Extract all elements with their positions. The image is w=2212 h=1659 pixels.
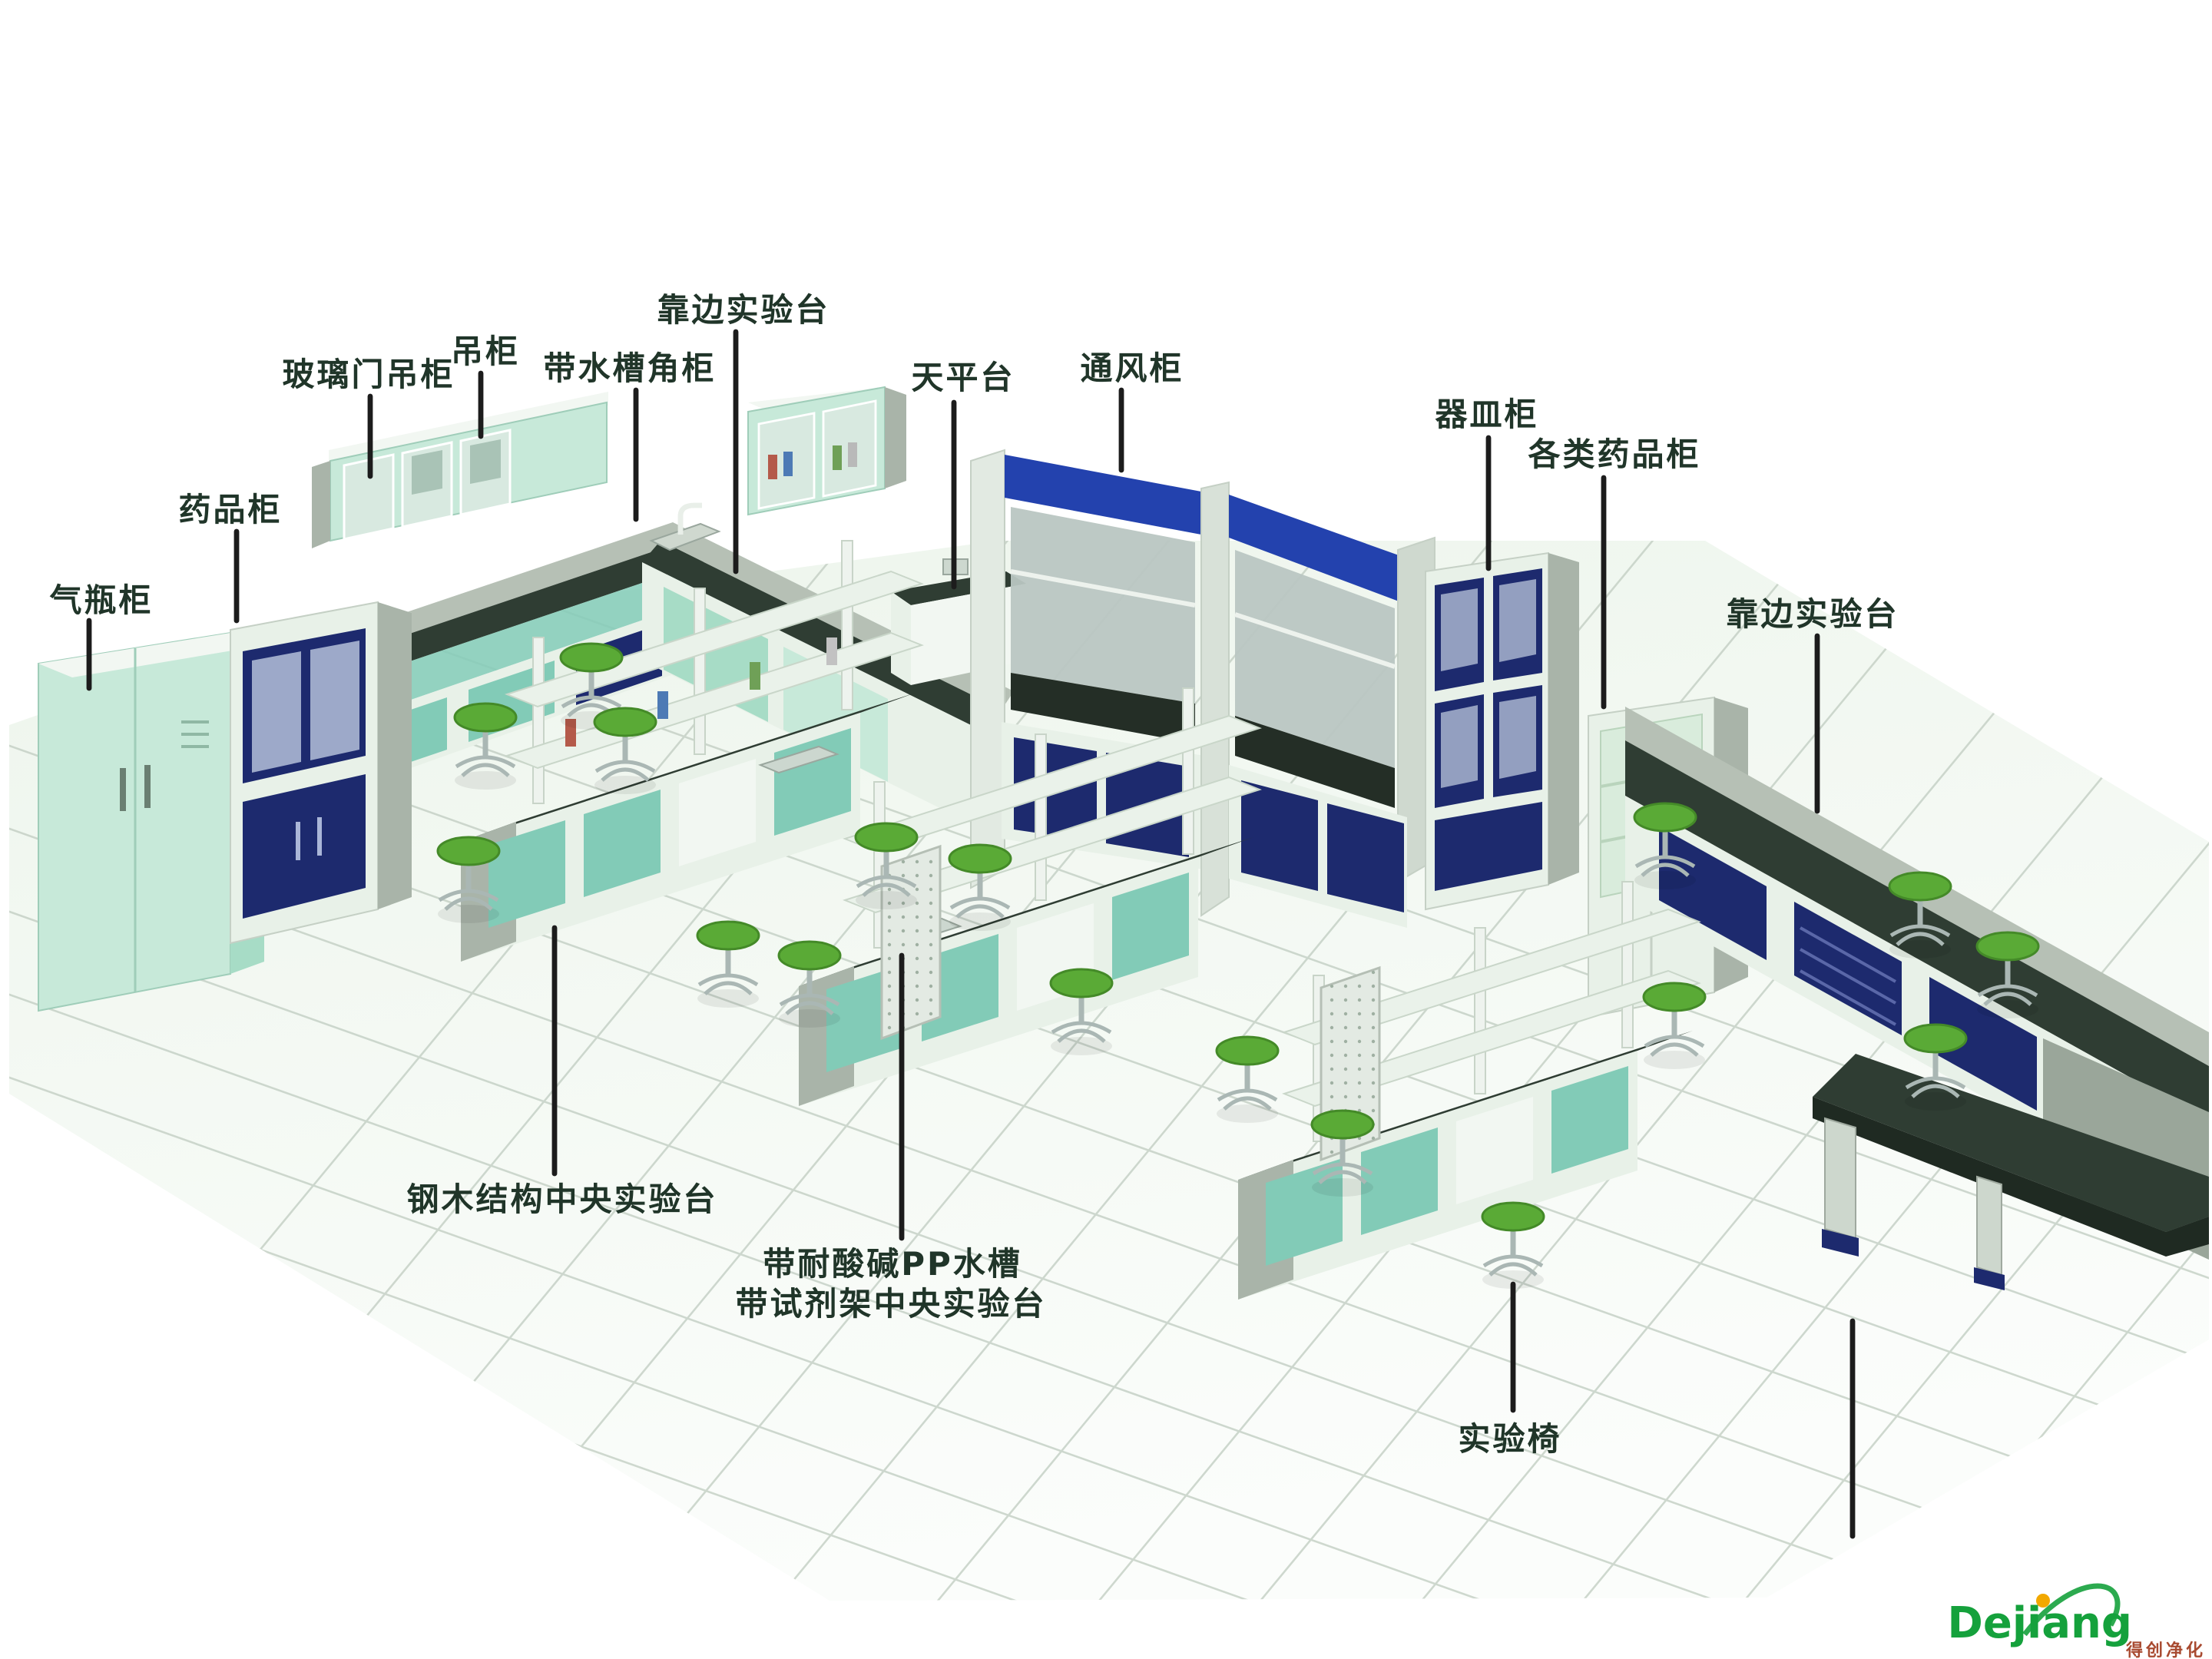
label-central-bench-sink-line2: 带试剂架中央实验台 (735, 1285, 1046, 1323)
vessel-cabinet (1426, 553, 1579, 909)
pegboard-screen (882, 846, 940, 1038)
medicine-cabinet (230, 602, 412, 943)
label-medicine-cabinet: 药品柜 (178, 491, 282, 528)
label-glass-door-wall-cabinet: 玻璃门吊柜 (282, 356, 455, 393)
wall-cabinet-band (312, 392, 608, 548)
logo-dot (2036, 1594, 2050, 1608)
label-various-medicine-cabinets: 各类药品柜 (1528, 435, 1700, 473)
logo: Dejiang 得创净化 (1947, 1586, 2206, 1659)
label-wall-cabinet: 吊柜 (451, 333, 520, 370)
label-vessel-cabinet: 器皿柜 (1435, 396, 1538, 433)
label-central-bench-sink-line1: 带耐酸碱PP水槽 (763, 1245, 1022, 1283)
label-side-bench-right: 靠边实验台 (1726, 595, 1899, 633)
label-balance-table: 天平台 (911, 359, 1015, 396)
label-lab-chair: 实验椅 (1458, 1420, 1561, 1458)
label-central-bench-steel-wood: 钢木结构中央实验台 (406, 1181, 717, 1218)
label-side-bench-left: 靠边实验台 (657, 291, 829, 329)
label-gas-cylinder-cabinet: 气瓶柜 (49, 581, 153, 619)
hanging-cabinet-center (748, 387, 906, 515)
label-fume-hood: 通风柜 (1080, 349, 1184, 387)
diagram-page: 气瓶柜 药品柜 玻璃门吊柜 吊柜 带水槽角柜 靠边实验台 天平台 通风柜 器皿柜… (0, 0, 2212, 1659)
lab-furniture-diagram: 气瓶柜 药品柜 玻璃门吊柜 吊柜 带水槽角柜 靠边实验台 天平台 通风柜 器皿柜… (0, 0, 2212, 1659)
label-sink-corner-cabinet: 带水槽角柜 (543, 349, 716, 387)
logo-tagline: 得创净化 (2125, 1641, 2206, 1659)
